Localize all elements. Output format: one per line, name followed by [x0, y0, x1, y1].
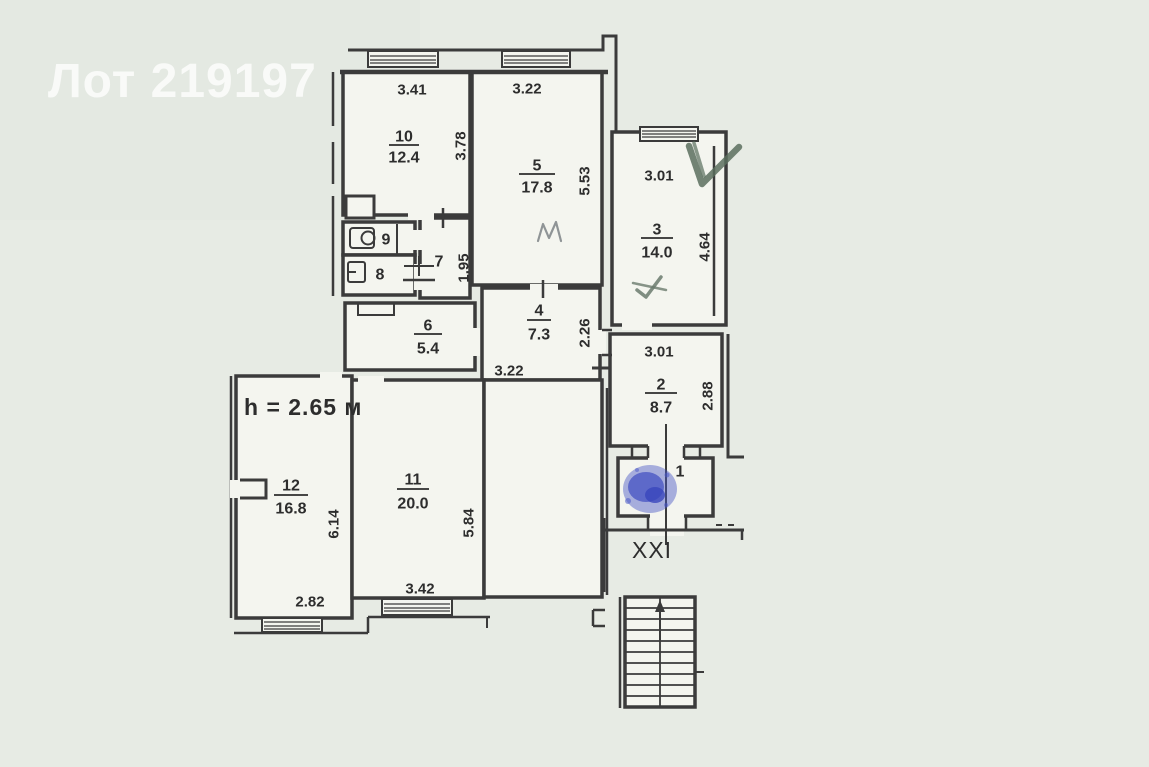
room11-width-dim: 3.42 — [405, 581, 434, 598]
room12-width-dim: 2.82 — [295, 594, 324, 611]
room11-number: 11 — [405, 472, 422, 489]
room9-number: 9 — [382, 232, 391, 249]
room11-area: 20.0 — [397, 496, 428, 513]
room1-number: 1 — [676, 464, 685, 481]
window-room11 — [382, 599, 452, 615]
room3-height-dim: 4.64 — [697, 232, 714, 262]
window-room5 — [502, 51, 570, 67]
ceiling-height-note: h = 2.65 м — [244, 394, 362, 420]
room5-width-dim: 3.22 — [512, 81, 541, 98]
room5-area: 17.8 — [521, 180, 552, 197]
room4-width-dim: 3.22 — [494, 363, 523, 380]
room-9-wc — [343, 222, 415, 255]
room4-number: 4 — [535, 303, 544, 320]
room4-area: 7.3 — [528, 327, 550, 344]
room3-number: 3 — [653, 222, 662, 239]
room6-area: 5.4 — [417, 341, 439, 358]
room7-number: 7 — [435, 254, 444, 271]
room2-height-dim: 2.88 — [700, 381, 717, 410]
room7-height-dim: 1.95 — [456, 253, 473, 282]
room12-area: 16.8 — [275, 501, 306, 518]
room10-width-dim: 3.41 — [397, 82, 426, 99]
room-6 — [345, 303, 475, 370]
room12-number: 12 — [282, 478, 300, 495]
room2-area: 8.7 — [650, 400, 672, 417]
room2-width-dim: 3.01 — [644, 344, 673, 361]
watermark-lot-number: Лот 219197 — [48, 55, 317, 108]
room4-height-dim: 2.26 — [577, 318, 594, 347]
room12-height-dim: 6.14 — [326, 509, 343, 539]
window-room3 — [640, 127, 698, 141]
room10-number: 10 — [395, 129, 413, 146]
ink-blot-icon — [623, 465, 677, 513]
closet — [346, 196, 374, 218]
room10-height-dim: 3.78 — [453, 131, 470, 160]
room3-area: 14.0 — [641, 245, 672, 262]
room6-number: 6 — [424, 318, 433, 335]
window-room12 — [262, 618, 322, 632]
stair-section-label: XXI — [632, 537, 672, 563]
room8-number: 8 — [376, 267, 385, 284]
floor-plan-photo: 3.41 10 12.4 3.78 3.22 5 17.8 5.53 3.01 … — [0, 0, 1149, 767]
window-room10 — [368, 51, 438, 67]
room3-width-dim: 3.01 — [644, 168, 673, 185]
room11-height-dim: 5.84 — [461, 508, 478, 538]
room-3 — [612, 132, 726, 325]
room5-number: 5 — [533, 158, 542, 175]
room2-number: 2 — [657, 377, 666, 394]
room10-area: 12.4 — [388, 150, 419, 167]
floor-plan: 3.41 10 12.4 3.78 3.22 5 17.8 5.53 3.01 … — [0, 0, 1149, 767]
hallway — [484, 380, 602, 597]
room5-height-dim: 5.53 — [577, 166, 594, 195]
